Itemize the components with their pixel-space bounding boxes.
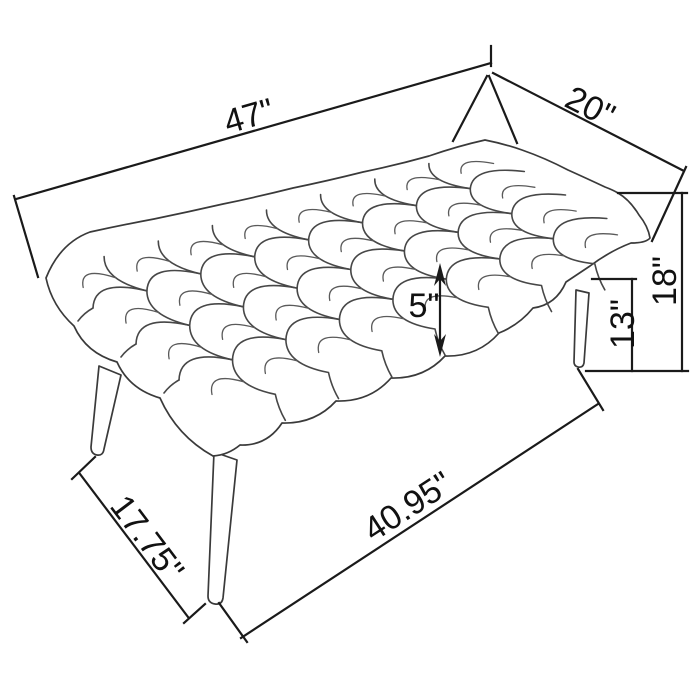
bench-dimension-diagram: 47" 20" 18" 13" 5" 40.95" 17.75" <box>0 0 700 700</box>
diagram-canvas: 47" 20" 18" 13" 5" 40.95" 17.75" <box>0 0 700 700</box>
dim-ext-base-depth-top <box>72 457 95 479</box>
dim-label-overall-height: 18" <box>646 256 684 306</box>
bench-leg-front-left <box>91 366 121 455</box>
dim-ext-base-length-bottom <box>219 603 247 642</box>
dim-label-base-length: 40.95" <box>357 464 459 549</box>
dim-ext-base-depth-bottom <box>184 604 205 623</box>
cushion-outline <box>46 140 650 456</box>
dim-label-cushion-thickness: 5" <box>409 287 440 325</box>
dim-ext-top-length-left <box>14 196 38 277</box>
bench-leg-back-right <box>574 290 589 367</box>
dim-label-underseat-height: 13" <box>604 299 642 349</box>
dim-label-top-length: 47" <box>220 91 278 141</box>
dim-ext-base-length-top <box>578 369 603 410</box>
dim-ext-corner-right <box>489 76 517 143</box>
dim-ext-corner-left <box>453 76 487 141</box>
dim-label-top-depth: 20" <box>559 79 621 136</box>
dim-label-base-depth: 17.75" <box>102 488 191 588</box>
bench-leg-front-right <box>208 452 237 604</box>
